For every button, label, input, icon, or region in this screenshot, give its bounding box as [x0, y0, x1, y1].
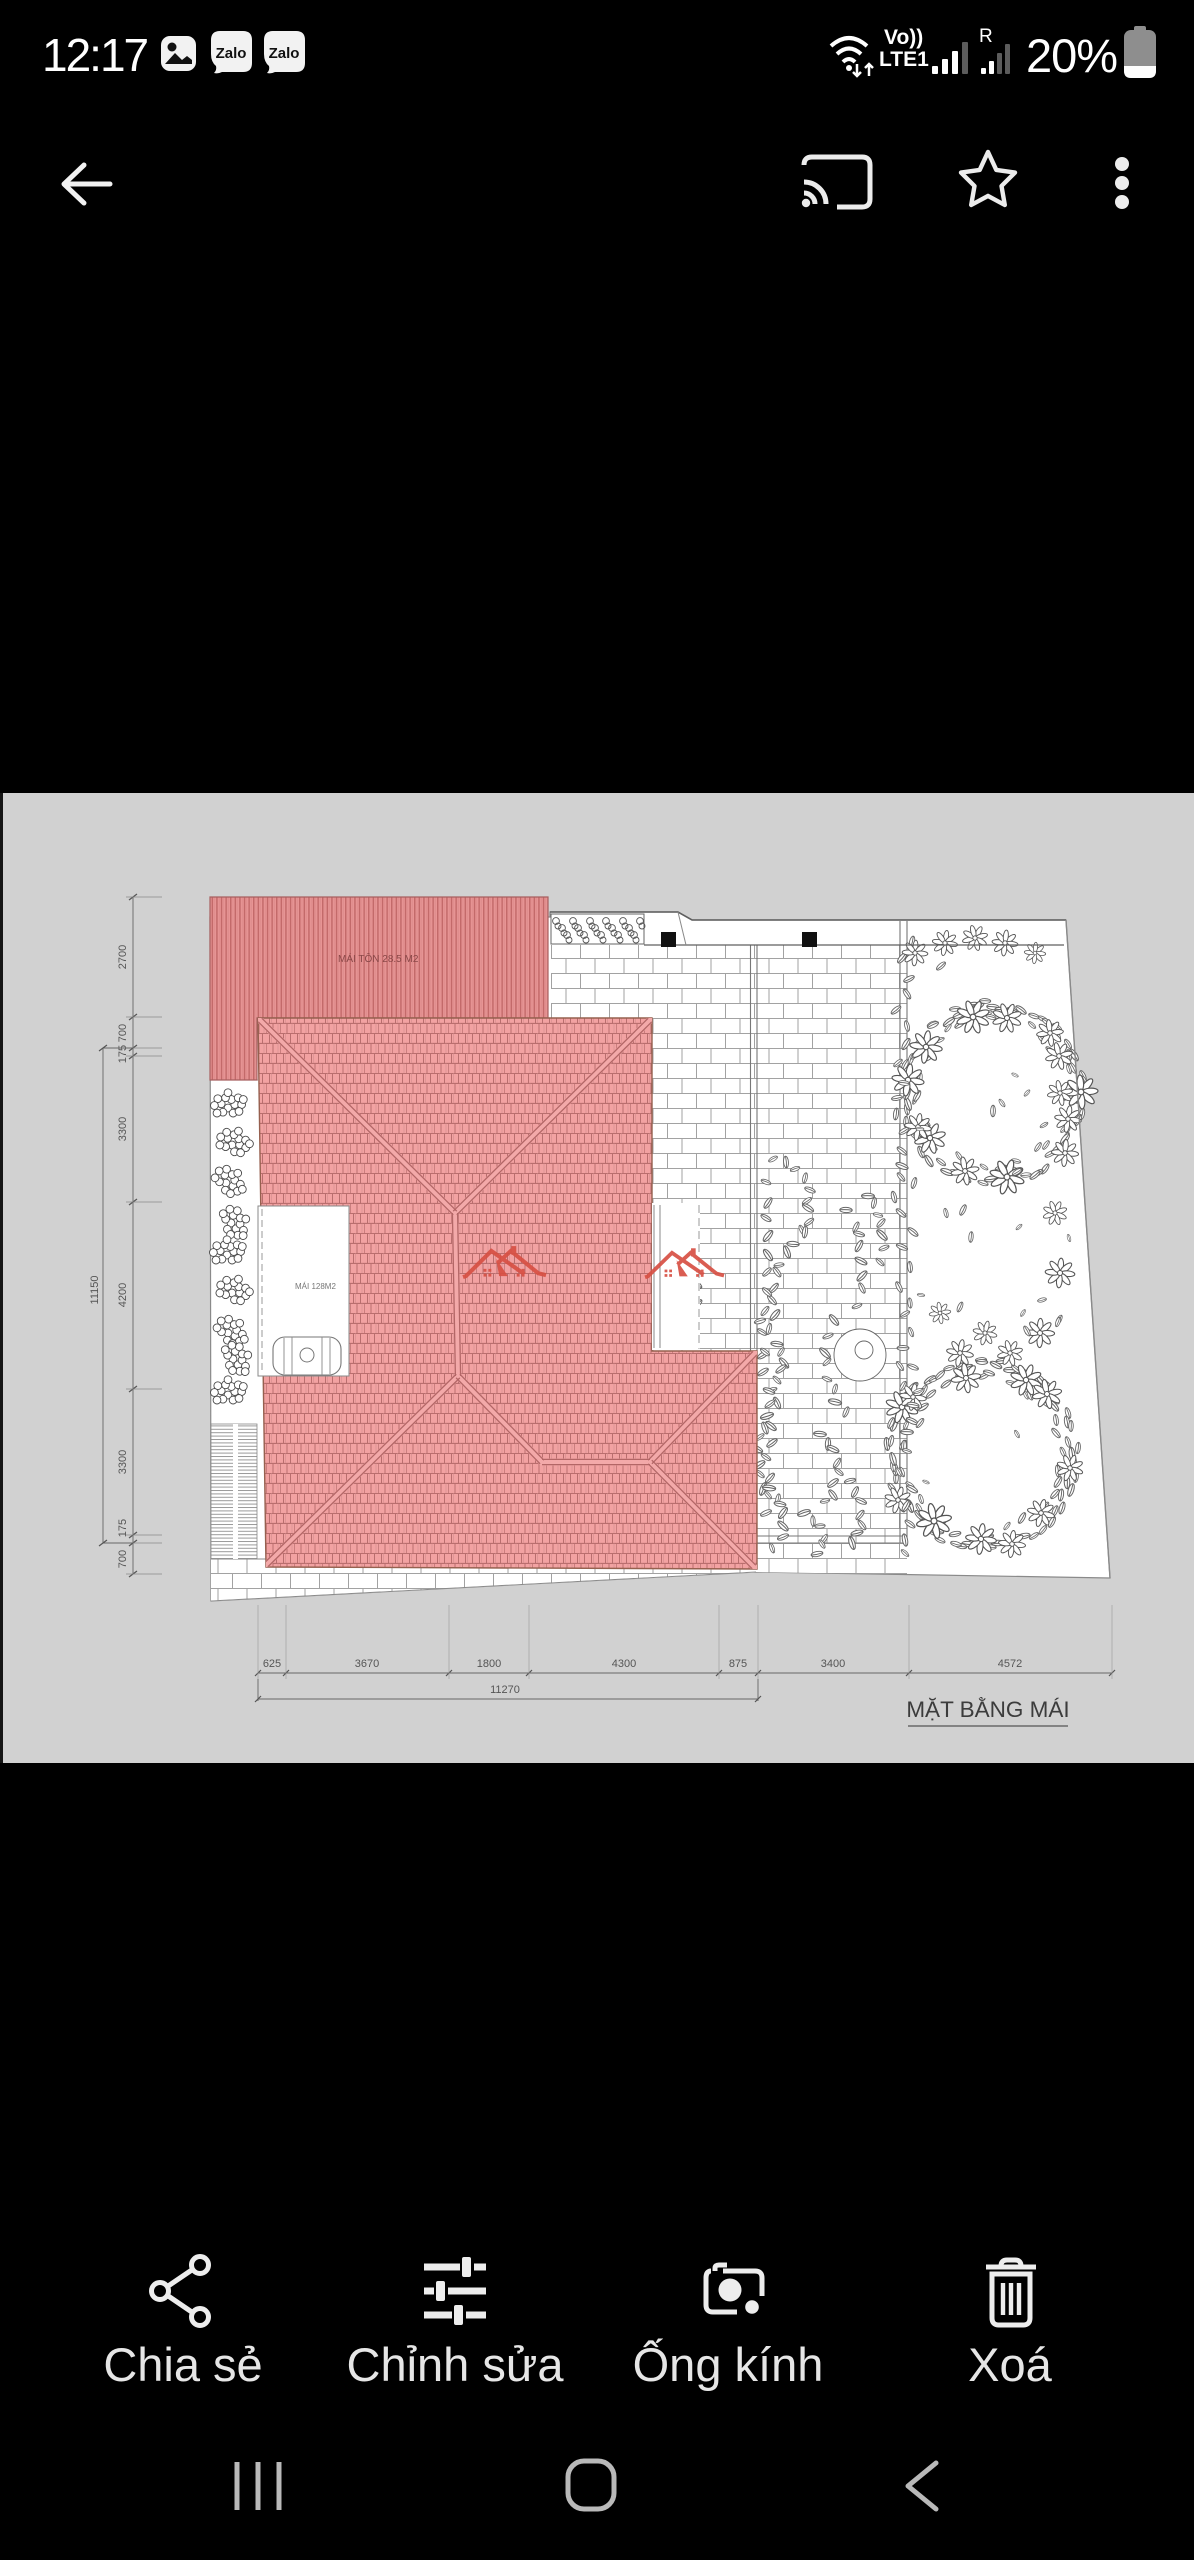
svg-text:MÁI 128M2: MÁI 128M2 [295, 1282, 336, 1291]
svg-text:MÁI TÔN 28.5 M2: MÁI TÔN 28.5 M2 [338, 952, 419, 965]
svg-text:175: 175 [117, 1519, 129, 1537]
svg-text:3400: 3400 [821, 1658, 845, 1670]
svg-text:11270: 11270 [490, 1684, 520, 1696]
svg-text:MẶT BẰNG MÁI: MẶT BẰNG MÁI [906, 1697, 1069, 1722]
svg-text:700: 700 [117, 1024, 129, 1042]
svg-text:Zalo: Zalo [269, 45, 300, 62]
svg-text:Zalo: Zalo [216, 45, 247, 62]
svg-text:11150: 11150 [89, 1276, 101, 1305]
svg-text:875: 875 [729, 1658, 747, 1670]
svg-text:3300: 3300 [117, 1450, 129, 1474]
svg-text:1800: 1800 [477, 1658, 501, 1670]
svg-text:2700: 2700 [117, 945, 129, 969]
svg-text:4200: 4200 [117, 1283, 129, 1307]
svg-text:700: 700 [117, 1550, 129, 1568]
svg-text:4300: 4300 [612, 1658, 636, 1670]
svg-text:625: 625 [263, 1658, 281, 1670]
svg-text:3300: 3300 [117, 1117, 129, 1141]
svg-text:4572: 4572 [998, 1658, 1022, 1670]
svg-text:3670: 3670 [355, 1658, 379, 1670]
svg-text:R: R [979, 26, 993, 47]
